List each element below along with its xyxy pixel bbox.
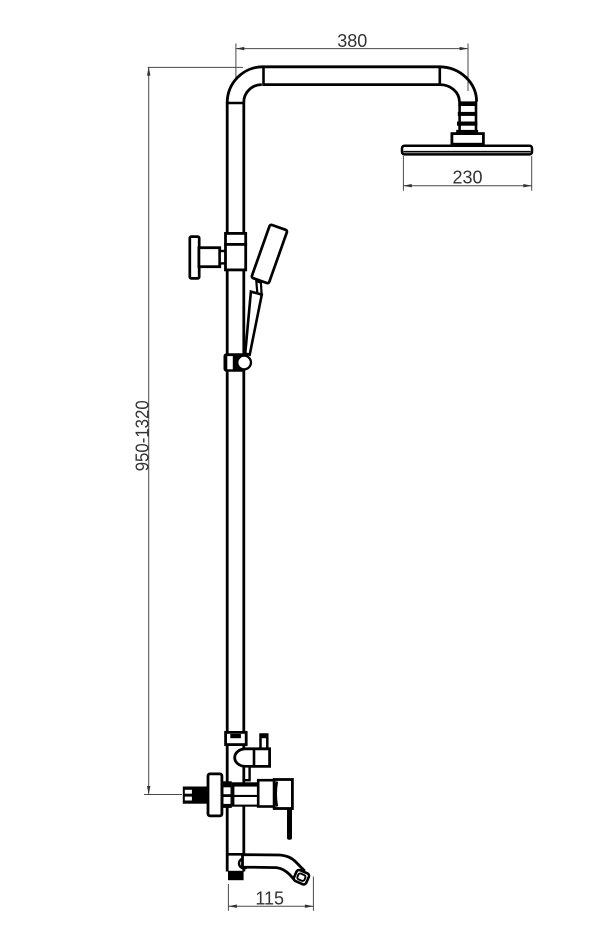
svg-text:230: 230 [452,168,482,188]
svg-text:115: 115 [255,888,284,908]
svg-text:380: 380 [337,31,367,51]
svg-text:950-1320: 950-1320 [133,400,153,471]
